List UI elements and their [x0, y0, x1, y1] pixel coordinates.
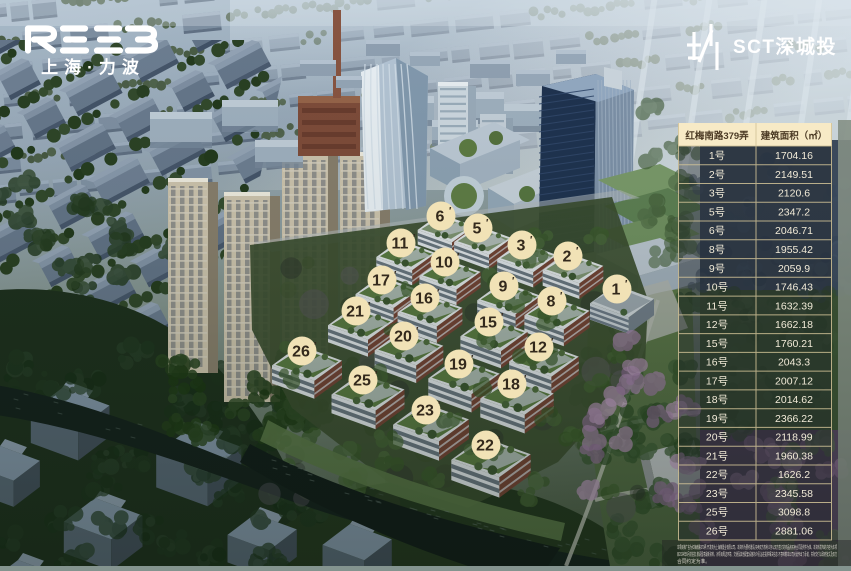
svg-text:2881.06: 2881.06 — [775, 525, 813, 537]
svg-text:3098.8: 3098.8 — [778, 507, 810, 519]
svg-text:1955.42: 1955.42 — [775, 244, 813, 256]
svg-text:2347.2: 2347.2 — [778, 206, 810, 218]
svg-text:1号: 1号 — [709, 150, 725, 162]
svg-text:2007.12: 2007.12 — [775, 375, 813, 387]
svg-text:22号: 22号 — [706, 469, 728, 481]
svg-text:2120.6: 2120.6 — [778, 188, 810, 200]
svg-text:1760.21: 1760.21 — [775, 338, 813, 350]
svg-text:21号: 21号 — [706, 450, 728, 462]
svg-text:9: 9 — [499, 279, 508, 296]
svg-text:16号: 16号 — [706, 357, 728, 369]
svg-text:19号: 19号 — [706, 413, 728, 425]
svg-text:18号: 18号 — [706, 394, 728, 406]
svg-text:2: 2 — [563, 249, 572, 266]
svg-text:2046.71: 2046.71 — [775, 225, 813, 237]
svg-text:11号: 11号 — [706, 300, 727, 312]
svg-text:2059.9: 2059.9 — [778, 263, 810, 275]
svg-text:23号: 23号 — [706, 488, 728, 500]
svg-text:1746.43: 1746.43 — [775, 282, 813, 294]
svg-text:8: 8 — [547, 294, 556, 311]
svg-text:5号: 5号 — [709, 206, 725, 218]
svg-text:15: 15 — [479, 315, 497, 332]
svg-text:19: 19 — [449, 357, 467, 374]
svg-text:1960.38: 1960.38 — [775, 450, 813, 462]
svg-text:2366.22: 2366.22 — [775, 413, 813, 425]
svg-text:3: 3 — [517, 238, 526, 255]
svg-text:目2024年6月前信息,敬请留意最新资料。对项目周边环境、交: 目2024年6月前信息,敬请留意最新资料。对项目周边环境、交通及其他配套设施的介… — [677, 551, 837, 558]
svg-text:2014.62: 2014.62 — [775, 394, 813, 406]
svg-text:上海·力波: 上海·力波 — [41, 57, 145, 77]
svg-text:1662.18: 1662.18 — [775, 319, 813, 331]
svg-text:建筑面积（㎡）: 建筑面积（㎡） — [760, 130, 828, 142]
svg-text:10: 10 — [435, 255, 453, 272]
svg-text:25: 25 — [353, 373, 371, 390]
svg-text:1: 1 — [612, 282, 621, 299]
svg-text:红梅南路379弄: 红梅南路379弄 — [685, 130, 749, 142]
svg-text:17号: 17号 — [706, 375, 728, 387]
svg-text:2号: 2号 — [709, 169, 725, 181]
svg-text:21: 21 — [346, 304, 364, 321]
svg-text:20号: 20号 — [706, 432, 728, 444]
svg-text:1626.2: 1626.2 — [778, 469, 810, 481]
svg-text:26: 26 — [292, 344, 310, 361]
svg-text:2043.3: 2043.3 — [778, 357, 810, 369]
svg-text:2345.58: 2345.58 — [775, 488, 813, 500]
svg-text:16: 16 — [415, 291, 433, 308]
svg-text:10号: 10号 — [706, 282, 728, 294]
svg-text:6: 6 — [436, 209, 445, 226]
svg-text:9号: 9号 — [709, 263, 725, 275]
svg-text:26号: 26号 — [706, 525, 728, 537]
svg-text:15号: 15号 — [706, 338, 728, 350]
svg-text:20: 20 — [394, 329, 412, 346]
svg-text:1704.16: 1704.16 — [775, 150, 813, 162]
svg-text:17: 17 — [372, 273, 390, 290]
svg-text:2149.51: 2149.51 — [775, 169, 813, 181]
svg-text:22: 22 — [476, 438, 494, 455]
svg-text:12号: 12号 — [706, 319, 728, 331]
svg-text:本项目推广名为红梅南路379弄,开发商为上海某置业有限公司。: 本项目推广名为红梅南路379弄,开发商为上海某置业有限公司。本资料为要约邀请,买… — [677, 544, 837, 551]
svg-text:3号: 3号 — [709, 188, 725, 200]
svg-text:23: 23 — [416, 403, 434, 420]
svg-text:合同约定为准。: 合同约定为准。 — [677, 558, 710, 565]
svg-text:5: 5 — [473, 221, 482, 238]
svg-text:12: 12 — [529, 340, 547, 357]
svg-text:SCT深城投: SCT深城投 — [733, 35, 837, 58]
svg-text:11: 11 — [392, 236, 409, 253]
svg-text:18: 18 — [502, 377, 520, 394]
svg-text:8号: 8号 — [709, 244, 725, 256]
svg-text:6号: 6号 — [709, 225, 725, 237]
svg-text:1632.39: 1632.39 — [775, 300, 813, 312]
svg-text:2118.99: 2118.99 — [775, 432, 812, 444]
svg-text:25号: 25号 — [706, 507, 728, 519]
